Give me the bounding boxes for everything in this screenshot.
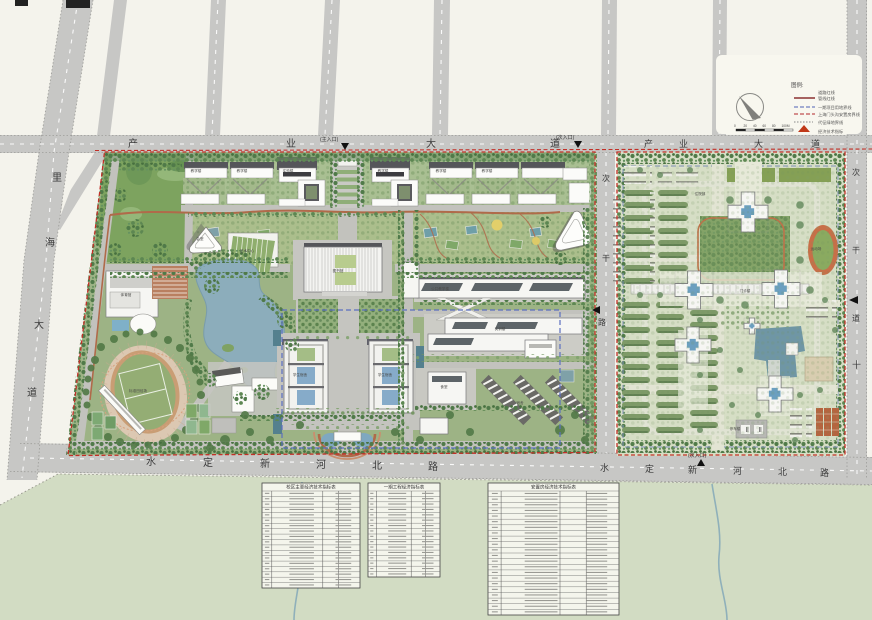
svg-text:大: 大 <box>754 138 763 149</box>
svg-text:标准田径场: 标准田径场 <box>129 388 147 393</box>
svg-text:次: 次 <box>602 173 610 183</box>
svg-text:产: 产 <box>644 138 653 149</box>
svg-text:图书馆: 图书馆 <box>333 268 344 273</box>
svg-text:(次入口): (次入口) <box>556 134 575 141</box>
svg-text:北: 北 <box>778 467 787 477</box>
svg-text:宿舍: 宿舍 <box>516 400 524 405</box>
svg-text:100M: 100M <box>782 124 790 128</box>
svg-text:次: 次 <box>852 167 860 177</box>
svg-text:业: 业 <box>679 139 688 149</box>
svg-text:干: 干 <box>852 246 860 255</box>
svg-text:艺术中心: 艺术中心 <box>240 248 255 253</box>
svg-text:路: 路 <box>598 317 606 327</box>
svg-text:河: 河 <box>733 465 742 476</box>
svg-text:道: 道 <box>27 386 37 399</box>
svg-text:0: 0 <box>734 124 736 128</box>
svg-text:门诊楼: 门诊楼 <box>740 288 751 293</box>
svg-text:代征绿地界线: 代征绿地界线 <box>818 119 844 126</box>
svg-text:教学楼: 教学楼 <box>237 168 248 173</box>
svg-text:80: 80 <box>772 124 776 128</box>
svg-text:图例:: 图例: <box>791 81 804 89</box>
svg-text:新: 新 <box>688 464 697 475</box>
svg-text:会堂: 会堂 <box>196 236 204 241</box>
svg-text:实训楼: 实训楼 <box>495 326 506 331</box>
svg-text:学生宿舍: 学生宿舍 <box>378 372 393 377</box>
svg-text:里: 里 <box>52 172 62 184</box>
svg-text:经济技术指标: 经济技术指标 <box>818 128 843 135</box>
svg-text:水: 水 <box>600 462 609 473</box>
svg-text:体育馆: 体育馆 <box>121 292 132 297</box>
svg-text:路: 路 <box>820 467 829 478</box>
svg-text:(主入口): (主入口) <box>320 136 339 143</box>
svg-text:一期项目用地界线: 一期项目用地界线 <box>818 104 852 111</box>
svg-text:公共教学楼: 公共教学楼 <box>431 286 449 291</box>
svg-text:路: 路 <box>428 460 438 473</box>
svg-text:大: 大 <box>34 318 44 331</box>
svg-text:教学楼: 教学楼 <box>378 168 389 173</box>
svg-text:新: 新 <box>260 457 270 470</box>
svg-text:定: 定 <box>645 463 654 474</box>
svg-text:大: 大 <box>426 137 436 150</box>
svg-text:学生宿舍: 学生宿舍 <box>293 372 308 377</box>
svg-text:运动场: 运动场 <box>811 246 822 251</box>
svg-text:教学楼: 教学楼 <box>482 168 493 173</box>
svg-text:产: 产 <box>128 137 138 150</box>
svg-text:定: 定 <box>203 456 213 469</box>
svg-text:业: 业 <box>286 138 296 150</box>
svg-text:道: 道 <box>811 138 820 149</box>
svg-text:一期工程经济指标表: 一期工程经济指标表 <box>384 484 425 491</box>
svg-text:道: 道 <box>852 313 860 323</box>
svg-text:河: 河 <box>316 459 326 471</box>
svg-text:停车楼: 停车楼 <box>730 426 741 431</box>
svg-text:海: 海 <box>45 236 55 249</box>
svg-text:住院部: 住院部 <box>695 191 706 196</box>
svg-text:教学楼: 教学楼 <box>191 168 202 173</box>
svg-text:校区主要经济技术指标表: 校区主要经济技术指标表 <box>286 484 336 491</box>
svg-text:上海门头沟安置房界线: 上海门头沟安置房界线 <box>818 111 861 118</box>
svg-text:教学楼: 教学楼 <box>436 168 447 173</box>
svg-text:60: 60 <box>763 124 767 128</box>
svg-text:(次入口): (次入口) <box>688 452 707 459</box>
svg-text:食堂: 食堂 <box>440 384 448 389</box>
svg-text:实验楼: 实验楼 <box>283 168 294 173</box>
svg-text:管线红线: 管线红线 <box>818 95 836 102</box>
svg-text:道路红线: 道路红线 <box>818 89 836 96</box>
svg-text:安置房经济技术指标表: 安置房经济技术指标表 <box>531 484 576 491</box>
svg-text:北: 北 <box>372 460 382 472</box>
svg-text:20: 20 <box>744 124 748 128</box>
svg-text:40: 40 <box>753 124 757 128</box>
svg-text:干: 干 <box>602 254 610 263</box>
svg-text:十: 十 <box>852 359 861 370</box>
svg-text:水: 水 <box>146 456 156 468</box>
